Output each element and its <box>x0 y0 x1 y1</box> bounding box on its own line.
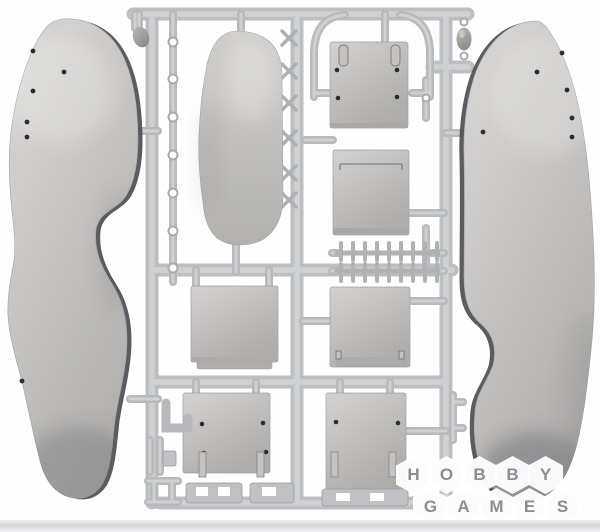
pontoon-part <box>198 31 283 245</box>
teardrop-part <box>457 28 472 51</box>
sprue-illustration <box>0 0 600 532</box>
rib-slot <box>339 45 348 66</box>
panel-bottom-edge <box>330 123 408 128</box>
right-body-side-panel <box>459 21 600 516</box>
hull-panel-upper-right <box>333 150 409 235</box>
panel-slot <box>257 452 264 477</box>
panel-slot <box>331 452 338 477</box>
floor-panel-bottom-left <box>183 393 270 477</box>
sprue-product-photo: H O B B Y G A M E S <box>0 0 600 532</box>
floor-panel-bottom-right <box>326 393 406 490</box>
floor-panel-mid-right <box>330 287 410 367</box>
panel-slot <box>199 452 206 477</box>
left-body-side-panel <box>5 19 143 514</box>
panel-bottom-edge <box>333 228 409 235</box>
panel-bottom-edge <box>191 357 278 362</box>
small-square-part <box>163 451 176 466</box>
photo-edge-strip <box>0 520 600 532</box>
hatch-panel-top-right <box>330 42 408 128</box>
floor-panel-mid-left <box>191 286 278 369</box>
teardrop-highlight <box>459 30 465 38</box>
panel-slot <box>389 452 396 477</box>
rib-slot <box>391 45 400 66</box>
